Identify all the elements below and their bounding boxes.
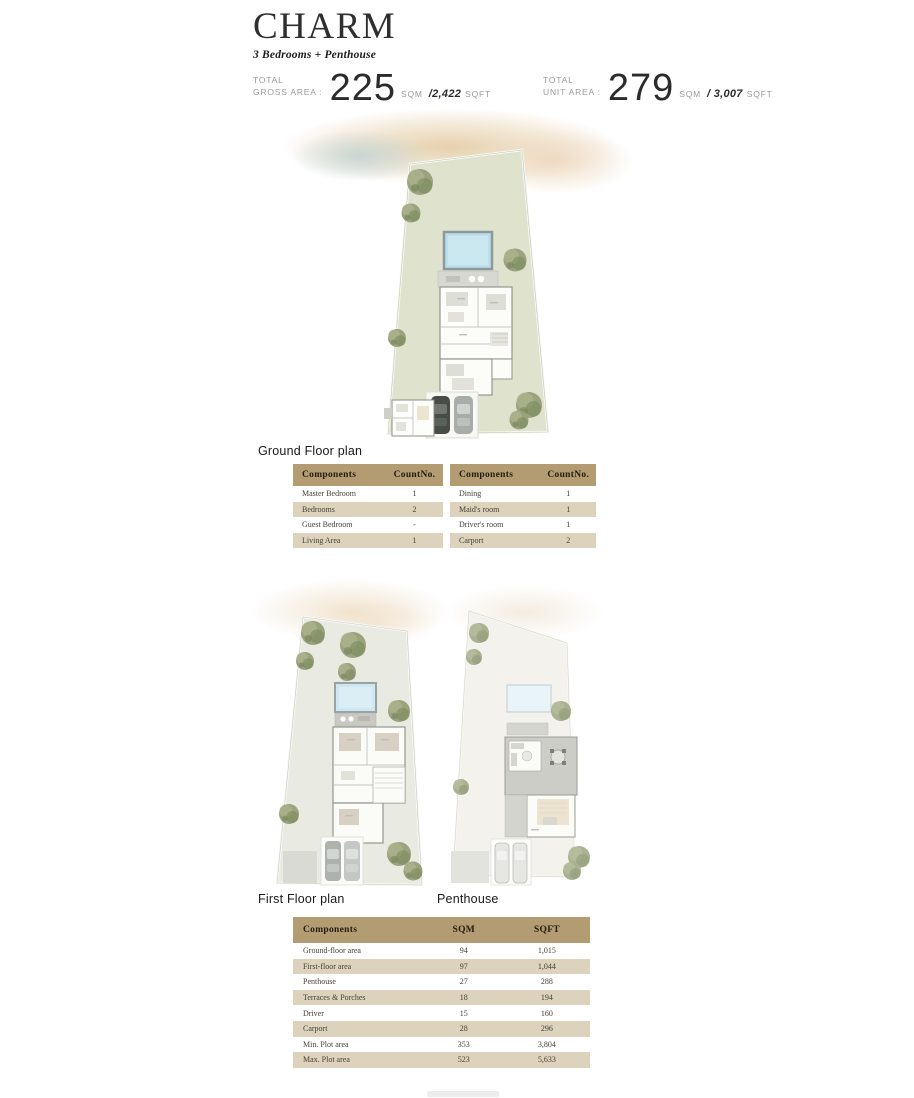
table-row: Carport28296 — [293, 1021, 590, 1037]
table-cell: 160 — [504, 1005, 590, 1021]
table-row: Living Area1 — [293, 533, 443, 549]
table-cell: Maid's room — [450, 502, 541, 518]
table-cell: 2 — [386, 502, 443, 518]
table-cell: - — [386, 517, 443, 533]
table-row: Bedrooms2 — [293, 502, 443, 518]
unit-area-stat: TOTAL UNIT AREA : 279 SQM / 3,007 SQFT — [543, 72, 773, 104]
column-header: CountNo. — [386, 464, 443, 486]
table-header-row: Components SQM SQFT — [293, 917, 590, 943]
table-row: Carport2 — [450, 533, 596, 549]
table-row: Master Bedroom1 — [293, 486, 443, 502]
column-header: SQFT — [504, 917, 590, 943]
page-title: CHARM — [253, 8, 396, 47]
sqm-unit: SQM — [401, 89, 423, 104]
table-row: Dining1 — [450, 486, 596, 502]
table-cell: 27 — [424, 974, 504, 990]
table-row: Min. Plot area3533,804 — [293, 1037, 590, 1053]
table-cell: 296 — [504, 1021, 590, 1037]
column-header: SQM — [424, 917, 504, 943]
table-row: Guest Bedroom- — [293, 517, 443, 533]
ground-floor-plan-illustration — [335, 112, 585, 444]
table-cell: Dining — [450, 486, 541, 502]
table-cell: 1 — [541, 502, 596, 518]
carport-cars — [321, 837, 363, 885]
sqft-unit: SQFT — [465, 89, 491, 104]
gross-area-sqft-value: /2,422 — [429, 88, 461, 104]
stat-label-line: GROSS AREA : — [253, 87, 323, 97]
table-cell: 94 — [424, 943, 504, 959]
stat-label-line: TOTAL — [253, 75, 284, 85]
table-cell: Carport — [293, 1021, 424, 1037]
column-header: Components — [293, 464, 386, 486]
sqft-unit: SQFT — [747, 89, 773, 104]
page-edge-artifact — [427, 1091, 499, 1097]
column-header: Components — [450, 464, 541, 486]
table-cell: Carport — [450, 533, 541, 549]
table-cell: 523 — [424, 1052, 504, 1068]
table-cell: 18 — [424, 990, 504, 1006]
penthouse-label: Penthouse — [437, 892, 499, 906]
table-row: Penthouse27288 — [293, 974, 590, 990]
sqm-unit: SQM — [679, 89, 701, 104]
table-row: Ground-floor area941,015 — [293, 943, 590, 959]
first-floor-plan-drawing — [255, 565, 440, 890]
annex-plan — [384, 400, 434, 436]
table-cell: Driver's room — [450, 517, 541, 533]
table-cell: 3,804 — [504, 1037, 590, 1053]
house-footprint — [440, 287, 512, 395]
ground-floor-plan-label: Ground Floor plan — [258, 444, 362, 458]
table-cell: 15 — [424, 1005, 504, 1021]
ground-floor-plan-drawing — [335, 112, 585, 444]
table-cell: Max. Plot area — [293, 1052, 424, 1068]
table-cell: Ground-floor area — [293, 943, 424, 959]
table-cell: 2 — [541, 533, 596, 549]
table-row: Driver's room1 — [450, 517, 596, 533]
pool — [507, 685, 551, 712]
table-row: Maid's room1 — [450, 502, 596, 518]
table-row: Driver15160 — [293, 1005, 590, 1021]
table-row: Terraces & Porches18194 — [293, 990, 590, 1006]
stat-label-line: TOTAL — [543, 75, 574, 85]
column-header: Components — [293, 917, 424, 943]
page-subtitle: 3 Bedrooms + Penthouse — [253, 49, 396, 61]
table-cell: 1,044 — [504, 959, 590, 975]
penthouse-plan-illustration — [445, 565, 605, 890]
table-cell: 288 — [504, 974, 590, 990]
table-cell: Penthouse — [293, 974, 424, 990]
table-cell: 194 — [504, 990, 590, 1006]
unit-area-sqft-value: / 3,007 — [707, 88, 743, 104]
gross-area-value: 225 — [330, 72, 396, 104]
table-cell: 1 — [386, 533, 443, 549]
table-cell: Terraces & Porches — [293, 990, 424, 1006]
table-cell: 1,015 — [504, 943, 590, 959]
unit-area-value: 279 — [608, 72, 674, 104]
area-summary-table: Components SQM SQFT Ground-floor area941… — [293, 917, 590, 1068]
table-row: Max. Plot area5235,633 — [293, 1052, 590, 1068]
table-cell: 28 — [424, 1021, 504, 1037]
column-header: CountNo. — [541, 464, 596, 486]
table-cell: Living Area — [293, 533, 386, 549]
penthouse-footprint — [505, 737, 577, 837]
area-stats: TOTAL GROSS AREA : 225 SQM /2,422 SQFT T… — [253, 72, 773, 104]
table-cell: First-floor area — [293, 959, 424, 975]
table-cell: 1 — [541, 517, 596, 533]
header: CHARM 3 Bedrooms + Penthouse — [253, 8, 396, 61]
first-floor-plan-illustration — [255, 565, 440, 890]
stat-label-line: UNIT AREA : — [543, 87, 601, 97]
carport-cars — [491, 839, 531, 885]
components-table-left: Components CountNo. Master Bedroom1Bedro… — [293, 464, 443, 548]
table-cell: Master Bedroom — [293, 486, 386, 502]
table-row: First-floor area971,044 — [293, 959, 590, 975]
table-cell: 1 — [386, 486, 443, 502]
gross-area-label: TOTAL GROSS AREA : — [253, 75, 323, 104]
gross-area-stat: TOTAL GROSS AREA : 225 SQM /2,422 SQFT — [253, 72, 491, 104]
utility-pad — [451, 851, 489, 883]
table-cell: 353 — [424, 1037, 504, 1053]
table-cell: Driver — [293, 1005, 424, 1021]
penthouse-plan-drawing — [445, 565, 605, 890]
table-cell: 97 — [424, 959, 504, 975]
first-floor-plan-label: First Floor plan — [258, 892, 345, 906]
table-cell: Min. Plot area — [293, 1037, 424, 1053]
table-header-row: Components CountNo. — [450, 464, 596, 486]
utility-pad — [283, 851, 317, 883]
components-table-right: Components CountNo. Dining1Maid's room1D… — [450, 464, 596, 548]
table-cell: 5,633 — [504, 1052, 590, 1068]
table-header-row: Components CountNo. — [293, 464, 443, 486]
table-cell: Guest Bedroom — [293, 517, 386, 533]
table-cell: Bedrooms — [293, 502, 386, 518]
table-cell: 1 — [541, 486, 596, 502]
unit-area-label: TOTAL UNIT AREA : — [543, 75, 601, 104]
